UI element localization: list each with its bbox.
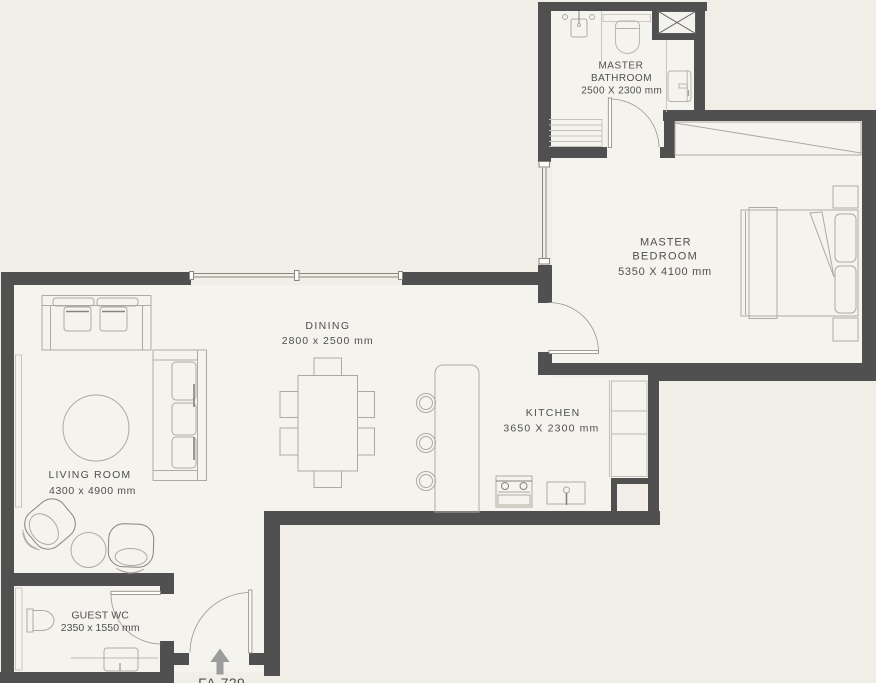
svg-text:4300 x 4900 mm: 4300 x 4900 mm bbox=[49, 485, 136, 497]
svg-text:MASTER: MASTER bbox=[640, 236, 692, 248]
svg-text:LIVING ROOM: LIVING ROOM bbox=[48, 469, 131, 481]
svg-text:2350 x 1550 mm: 2350 x 1550 mm bbox=[61, 622, 140, 634]
svg-text:KITCHEN: KITCHEN bbox=[526, 407, 581, 419]
svg-text:2800 x 2500 mm: 2800 x 2500 mm bbox=[282, 335, 374, 347]
svg-text:DINING: DINING bbox=[305, 320, 350, 332]
svg-text:FA-729: FA-729 bbox=[198, 675, 245, 683]
svg-text:5350 X 4100 mm: 5350 X 4100 mm bbox=[618, 266, 712, 278]
svg-text:BATHROOM: BATHROOM bbox=[591, 73, 652, 84]
svg-text:2500 X 2300 mm: 2500 X 2300 mm bbox=[581, 86, 662, 97]
svg-text:MASTER: MASTER bbox=[598, 60, 643, 71]
svg-text:GUEST WC: GUEST WC bbox=[71, 609, 129, 621]
svg-text:3650 X 2300 mm: 3650 X 2300 mm bbox=[503, 422, 599, 434]
svg-text:BEDROOM: BEDROOM bbox=[632, 251, 698, 263]
